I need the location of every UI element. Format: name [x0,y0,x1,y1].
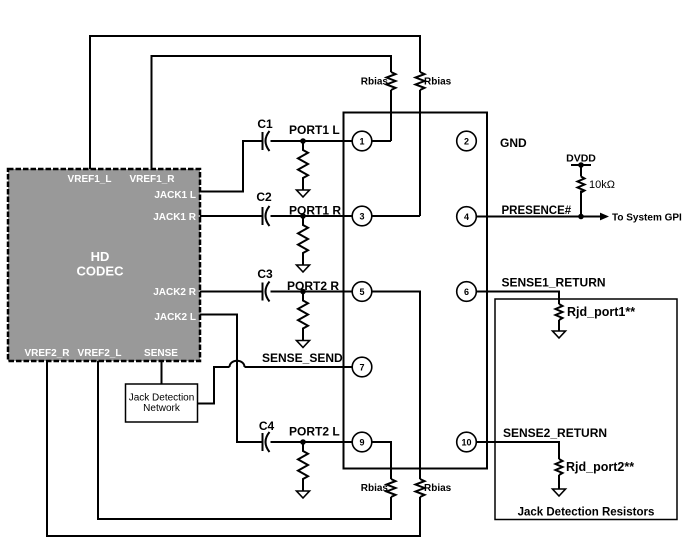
svg-text:JACK2 L: JACK2 L [154,312,196,323]
svg-text:CODEC: CODEC [77,264,125,279]
svg-text:JACK1 R: JACK1 R [153,212,197,223]
svg-text:PRESENCE#: PRESENCE# [502,205,572,217]
svg-text:PORT1 L: PORT1 L [289,123,340,137]
svg-text:6: 6 [464,287,469,297]
svg-text:HD: HD [91,249,110,264]
svg-text:SENSE2_RETURN: SENSE2_RETURN [503,426,607,440]
svg-text:To System GPI: To System GPI [612,213,682,224]
svg-text:5: 5 [359,287,364,297]
svg-text:JACK2 R: JACK2 R [153,287,197,298]
svg-text:VREF1_L: VREF1_L [68,174,112,185]
svg-text:SENSE: SENSE [144,348,178,359]
svg-text:Rbias: Rbias [424,77,452,88]
svg-text:Rbias: Rbias [361,483,389,494]
svg-text:C1: C1 [257,117,273,131]
svg-text:Network: Network [143,403,181,414]
svg-text:Rjd_port2**: Rjd_port2** [566,460,634,474]
svg-text:PORT1 R: PORT1 R [289,204,341,218]
svg-text:SENSE1_RETURN: SENSE1_RETURN [502,276,606,290]
svg-text:2: 2 [464,137,469,147]
svg-text:C4: C4 [259,419,275,433]
svg-text:DVDD: DVDD [566,153,596,165]
svg-text:PORT2 R: PORT2 R [287,279,339,293]
svg-text:C2: C2 [256,190,272,204]
svg-text:7: 7 [359,363,364,373]
svg-text:C3: C3 [257,267,273,281]
svg-text:GND: GND [500,136,527,150]
svg-text:Jack Detection Resistors: Jack Detection Resistors [518,507,655,519]
svg-text:SENSE_SEND: SENSE_SEND [262,351,343,365]
svg-text:10: 10 [461,438,471,448]
svg-text:Jack Detection: Jack Detection [129,393,195,404]
svg-text:9: 9 [359,438,364,448]
svg-text:4: 4 [464,212,469,222]
svg-text:Rbias: Rbias [361,77,389,88]
svg-text:3: 3 [359,212,364,222]
svg-text:Rjd_port1**: Rjd_port1** [567,305,635,319]
svg-text:1: 1 [359,137,364,147]
svg-text:VREF2_R: VREF2_R [24,348,70,359]
svg-text:Rbias: Rbias [424,483,452,494]
svg-text:PORT2 L: PORT2 L [289,425,340,439]
svg-text:10kΩ: 10kΩ [589,179,615,191]
svg-text:JACK1 L: JACK1 L [154,190,196,201]
svg-text:VREF2_L: VREF2_L [78,348,122,359]
svg-text:VREF1_R: VREF1_R [129,174,175,185]
